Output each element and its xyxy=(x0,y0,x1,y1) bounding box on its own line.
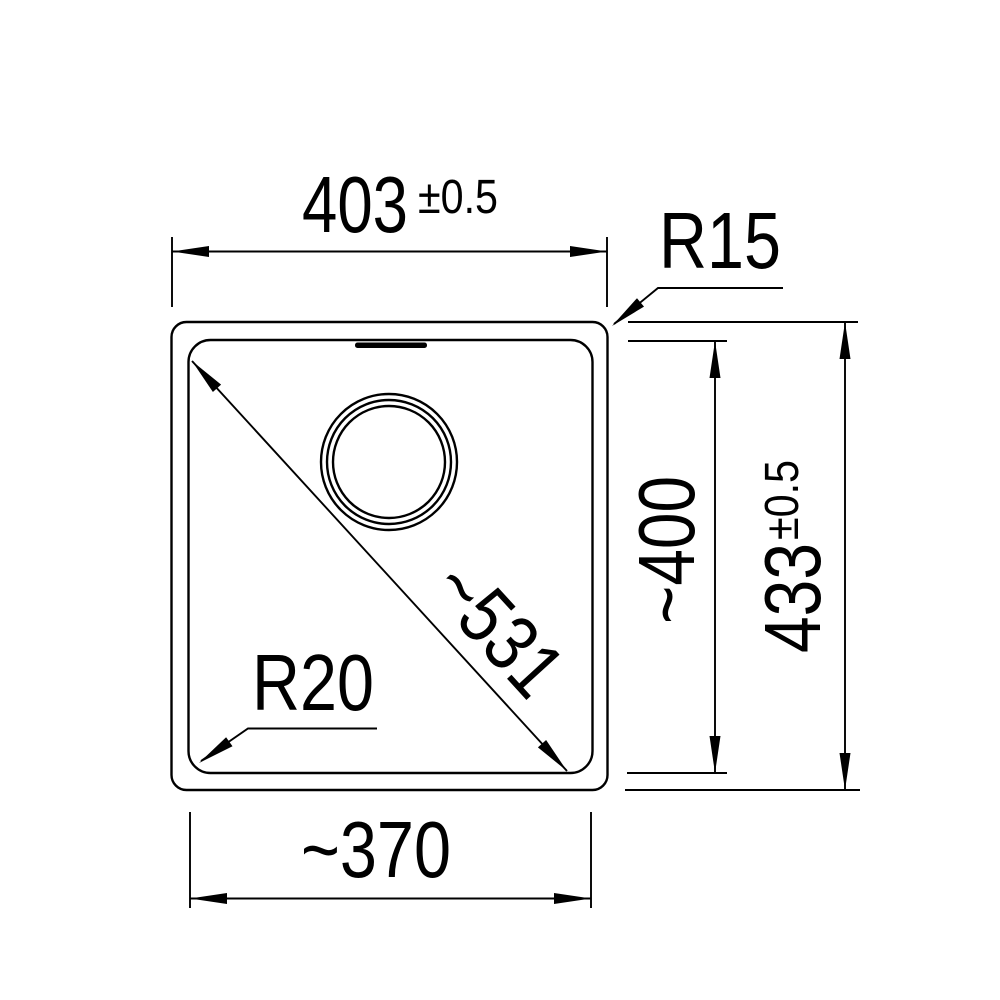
drawing-background xyxy=(0,0,1000,1000)
dim-label-outer-depth: 433 xyxy=(748,543,837,653)
dim-label-top-width-tolerance: ±0.5 xyxy=(418,171,498,224)
dim-label-outer-depth-tolerance: ±0.5 xyxy=(756,460,809,540)
technical-drawing-page: 403 ±0.5 R15 ~531 R20 ~400 433 xyxy=(0,0,1000,1000)
label-outer-radius: R15 xyxy=(659,196,781,285)
dim-label-bottom-width: ~370 xyxy=(301,805,451,894)
dim-label-top-width: 403 xyxy=(302,160,408,249)
overflow-slot xyxy=(355,343,427,349)
label-inner-radius: R20 xyxy=(252,638,374,727)
sink-dimension-drawing-canvas: 403 ±0.5 R15 ~531 R20 ~400 433 xyxy=(0,0,1000,1000)
dim-label-inner-depth: ~400 xyxy=(622,476,711,624)
